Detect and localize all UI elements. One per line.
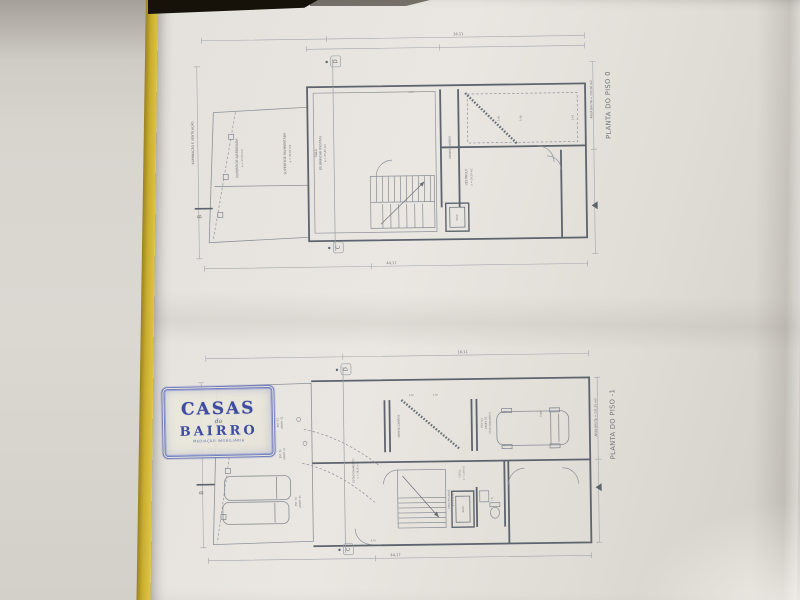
plan1-stairs: [383, 469, 446, 528]
plan1-label-est01b: APART. 01: [298, 495, 302, 508]
plan0-dim-bottom: 44,17: [386, 261, 396, 265]
plan1-dim-3: 0,90: [409, 394, 415, 397]
logo-text-bairro: BAIRRO: [180, 424, 258, 439]
plan1-title: PLANTA DO PISO -1: [608, 389, 617, 460]
plan0-marker-c: C: [336, 245, 342, 249]
plan1-label-casa-escadas: CASA ESCADAS: [447, 489, 451, 509]
plan1-label-wc: I.S.: [491, 497, 494, 501]
casas-do-bairro-logo: CASAS do BAIRRO MEDIAÇÃO IMOBILIÁRIA: [161, 385, 275, 459]
plan0-dim-4: 5,40: [519, 115, 522, 121]
photo-scene: D C B ILUMINAÇÃO E VENTILAÇÃO SUPERFÍCIE…: [0, 0, 800, 600]
plan1-label-est04b: APART. 02: [484, 416, 488, 429]
plan0-label-monta-carros: MONTA CARROS: [448, 136, 452, 159]
plan1-dim-4: 2,30: [433, 393, 439, 396]
plan0-label-pavimentada: SUPERFÍCIE PAVIMENTADA: [282, 132, 288, 175]
plan1-wc-fixtures: [480, 491, 500, 519]
plan0-building-walls: [307, 83, 587, 241]
plan1-marker-c: C: [346, 547, 352, 551]
plan1-label-est04: EST. 04: [480, 418, 484, 428]
plan0-label-sala-2: DE BRINCAR (FESTAS): [318, 136, 322, 170]
plan0-dim-top: 16,11: [453, 32, 463, 36]
logo-text-casas: CASAS: [179, 400, 257, 419]
plan1-label-estacionamento: ESTACIONAMENTO: [351, 459, 355, 483]
plan0-marker-d: D: [333, 59, 339, 63]
plan1-label-est03b: APART. 02: [280, 416, 284, 429]
plan1-marker-d: D: [343, 367, 349, 371]
plan1-label-circul: CIRCUL.: [458, 468, 461, 477]
plan0-label-elev: ELEV.: [456, 214, 459, 221]
plan0-dim-3: 3,40: [497, 115, 500, 121]
logo-tagline: MEDIAÇÃO IMOBILIÁRIA: [180, 439, 258, 444]
plan0-label-pavimentada-area: a = 35,60 m2: [288, 144, 292, 162]
plan1-car-right: [497, 408, 570, 449]
plan1-label-casa-escadas-area: a = 4,70 m2: [452, 492, 455, 506]
plan1-label-est02: EST. 02: [278, 449, 282, 459]
plan0-patio-walls: [207, 107, 309, 242]
plan0-dim-6: 0,90: [409, 91, 415, 94]
plan1-dim-6: 4,70: [371, 539, 377, 542]
plan1-dim-bottom: 44,17: [390, 553, 400, 557]
plan1-marker-b: B: [199, 491, 205, 495]
logo-text-block: CASAS do BAIRRO MEDIAÇÃO IMOBILIÁRIA: [179, 400, 258, 444]
plan0-label-ajardinada: SUPERFÍCIE AJARDINADA: [234, 138, 240, 178]
plan0-label-iluminacao: ILUMINAÇÃO E VENTILAÇÃO: [189, 121, 195, 165]
plan0-label-vestibulo-area: a = 18,20 m2: [469, 168, 473, 186]
plan0-label-sala-area: a = 25,40 m2: [323, 144, 327, 162]
plan0-section-line: [193, 52, 599, 255]
plan1-dim-top: 16,11: [458, 350, 468, 354]
plan0-marker-b: B: [197, 215, 203, 219]
plan1-label-est03: EST. 03: [276, 418, 280, 428]
plan1-label-monta-carros: MONTA CARROS: [397, 414, 401, 437]
plan0-label-ajardinada-area: a = 17,00 m2: [240, 149, 244, 167]
plan0-title: PLANTA DO PISO 0: [604, 71, 613, 139]
plan0-dimension-lines: [193, 32, 598, 272]
plan1-label-estacionamento-area: a = 19,50 m2: [356, 462, 359, 478]
plan1-area-note: ÁREA BRUTA = 131,20 m2: [592, 398, 598, 437]
plan0-stairs: [370, 176, 435, 229]
plan1-label-est01: EST. 01: [294, 496, 298, 506]
plan0-label-sala: SALA: [314, 148, 318, 157]
plan1-ramp-and-arcs: [296, 398, 579, 546]
plan1-label-elev: ELEV.: [462, 506, 465, 513]
plan0-area-note: ÁREA BRUTA = 132,00 m2: [588, 80, 594, 119]
floorplan-drawing: D C B ILUMINAÇÃO E VENTILAÇÃO SUPERFÍCIE…: [0, 0, 800, 600]
plan1-label-est04c: ESTACIONAMENTO: [489, 412, 492, 434]
plan1-cars-left: [222, 476, 291, 525]
plan1-label-est02b: APART. 01: [282, 447, 286, 460]
plan1-dim-5: 5,00: [540, 411, 543, 417]
plan0-dim-5: 2,45: [571, 114, 574, 120]
plan1-label-circul-area: a = 11,60 m2: [463, 465, 465, 480]
plan0-label-vestibulo: VESTÍBULO: [463, 168, 468, 185]
